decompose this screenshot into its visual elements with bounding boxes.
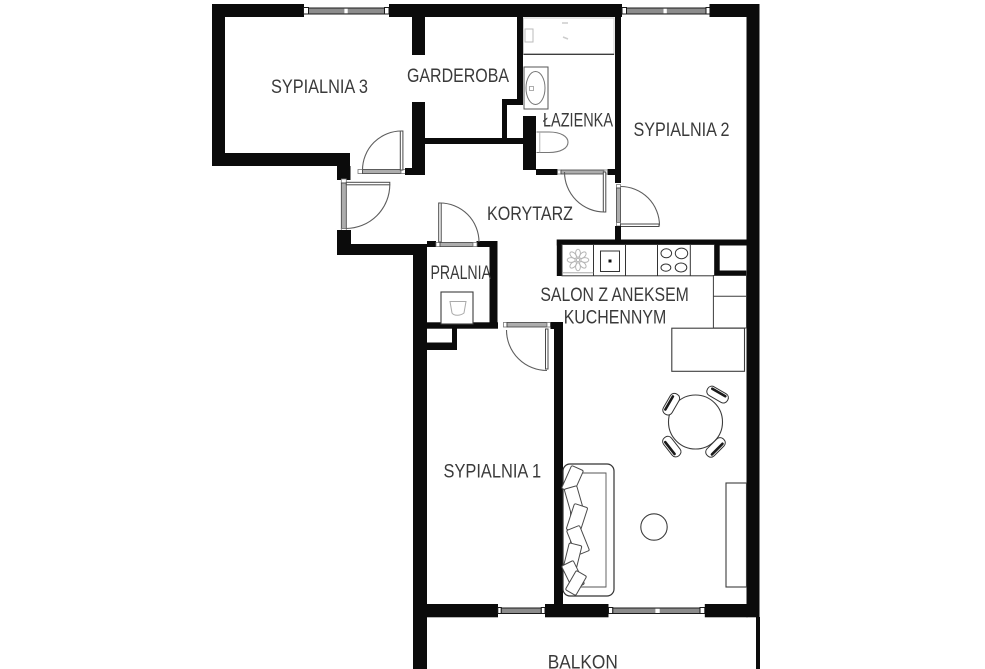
svg-text:ŁAZIENKA: ŁAZIENKA bbox=[543, 111, 613, 132]
svg-text:KORYTARZ: KORYTARZ bbox=[487, 204, 573, 225]
svg-text:PRALNIA: PRALNIA bbox=[431, 263, 492, 284]
svg-text:BALKON: BALKON bbox=[548, 653, 618, 669]
svg-text:GARDEROBA: GARDEROBA bbox=[407, 66, 509, 87]
svg-text:SALON Z ANEKSEM: SALON Z ANEKSEM bbox=[540, 285, 688, 306]
svg-text:KUCHENNYM: KUCHENNYM bbox=[564, 307, 667, 328]
svg-text:SYPIALNIA 1: SYPIALNIA 1 bbox=[444, 462, 542, 483]
svg-text:SYPIALNIA 2: SYPIALNIA 2 bbox=[634, 120, 730, 141]
svg-text:SYPIALNIA 3: SYPIALNIA 3 bbox=[271, 77, 368, 98]
